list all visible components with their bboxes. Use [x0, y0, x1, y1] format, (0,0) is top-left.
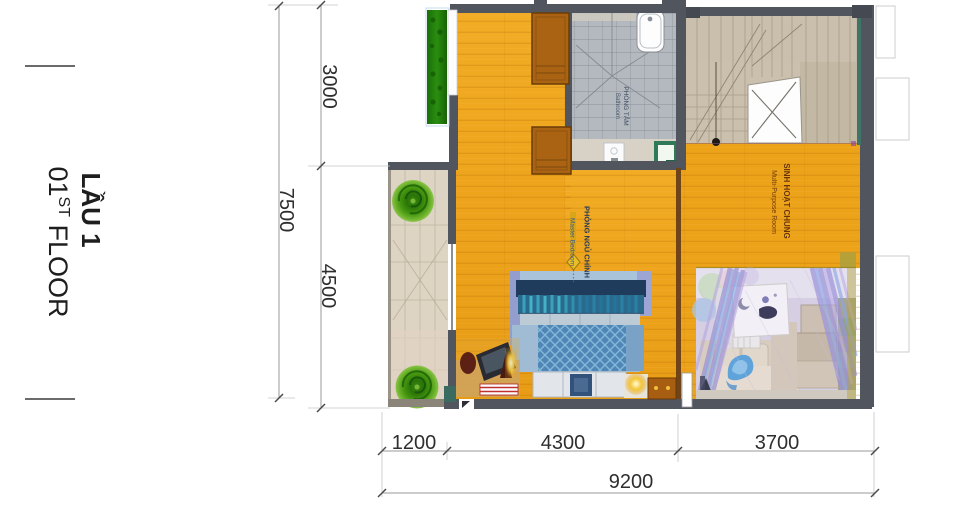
svg-text:SINH HOẠT CHUNG: SINH HOẠT CHUNG	[782, 163, 791, 239]
svg-text:7500: 7500	[275, 188, 297, 233]
svg-text:PHÒNG TẮM: PHÒNG TẮM	[622, 86, 631, 125]
svg-text:LẦU 1: LẦU 1	[76, 172, 106, 247]
svg-text:3700: 3700	[755, 432, 800, 454]
svg-text:01ST FLOOR: 01ST FLOOR	[43, 166, 73, 317]
svg-text:PHÒNG NGỦ CHÍNH: PHÒNG NGỦ CHÍNH	[583, 206, 592, 278]
svg-text:Bathroom: Bathroom	[614, 93, 620, 119]
svg-text:Master Bedroom: Master Bedroom	[569, 218, 576, 266]
svg-text:Multi-Purpose Room: Multi-Purpose Room	[770, 170, 777, 234]
svg-text:9200: 9200	[609, 471, 654, 493]
svg-text:4500: 4500	[317, 264, 339, 309]
svg-text:4300: 4300	[541, 432, 586, 454]
svg-text:1200: 1200	[392, 432, 437, 454]
svg-text:3000: 3000	[318, 64, 340, 109]
